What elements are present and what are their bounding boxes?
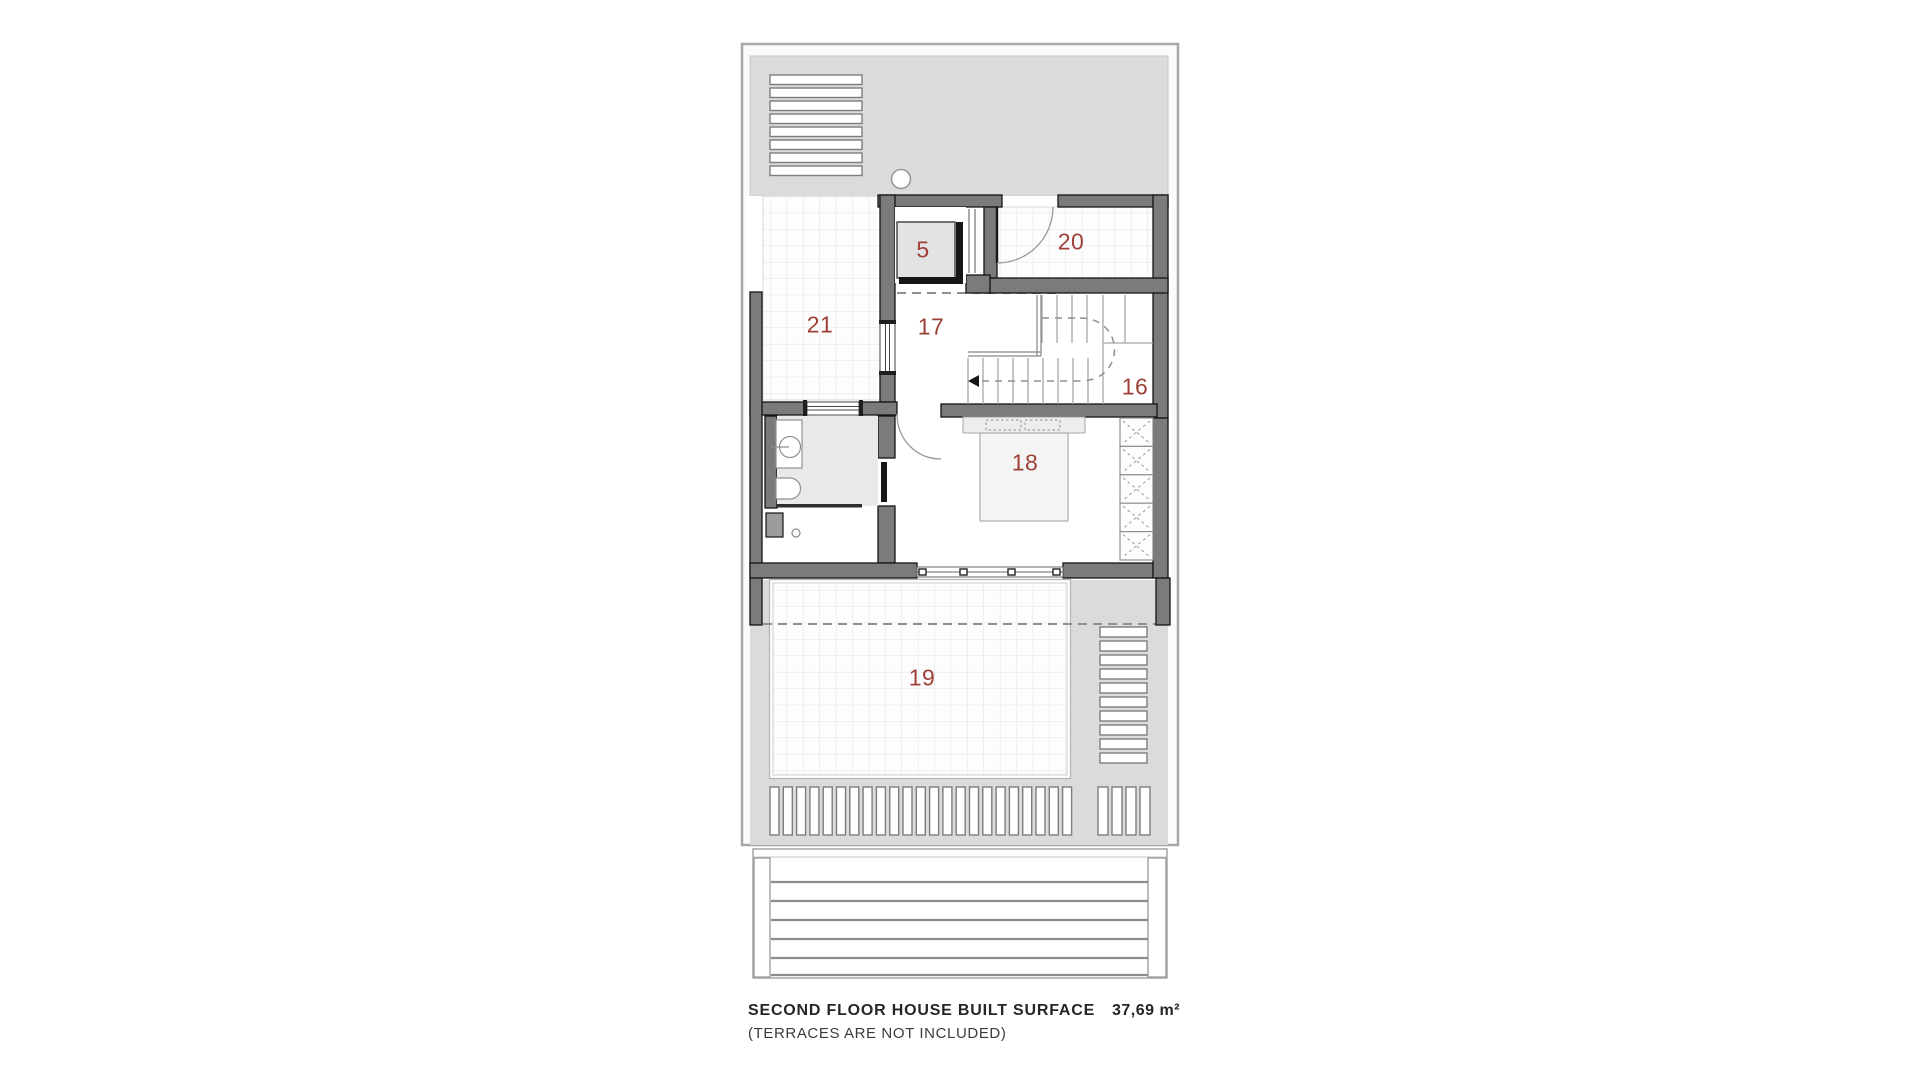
room-label-18: 18	[1012, 450, 1039, 477]
bathroom-sliding-door	[881, 462, 887, 502]
room-label-20: 20	[1058, 229, 1085, 256]
bed	[980, 433, 1068, 521]
floor-plan-drawing	[0, 0, 1920, 1080]
caption-area-value: 37,69 m²	[1112, 1002, 1180, 1020]
room-label-5: 5	[916, 237, 929, 264]
lower-railing	[753, 849, 1167, 978]
room-label-16: 16	[1122, 374, 1149, 401]
terrace-21-tiles	[763, 196, 880, 400]
roof-terrace-top	[750, 56, 1168, 196]
shower-drain-icon	[792, 529, 800, 537]
terrace-sliding-door	[917, 567, 1063, 577]
wardrobe	[1120, 418, 1153, 560]
hall-window	[879, 320, 896, 375]
room-label-21: 21	[807, 312, 834, 339]
shower-column	[766, 513, 783, 537]
elevator	[895, 207, 975, 284]
caption-block: SECOND FLOOR HOUSE BUILT SURFACE (TERRAC…	[748, 1002, 1095, 1042]
toilet-icon	[776, 478, 801, 499]
bed-headboard	[963, 417, 1085, 433]
room-label-19: 19	[909, 665, 936, 692]
roof-drain-icon	[892, 170, 911, 189]
bathroom-window	[803, 400, 863, 416]
caption-note: (TERRACES ARE NOT INCLUDED)	[748, 1025, 1095, 1042]
pergola-slats-icon	[770, 787, 1072, 835]
caption-title: SECOND FLOOR HOUSE BUILT SURFACE	[748, 1002, 1095, 1020]
room-label-17: 17	[918, 314, 945, 341]
elevator-door	[899, 277, 963, 284]
floor-plan-page: 5 20 21 17 16 18 19 SECOND FLOOR HOUSE B…	[0, 0, 1920, 1080]
